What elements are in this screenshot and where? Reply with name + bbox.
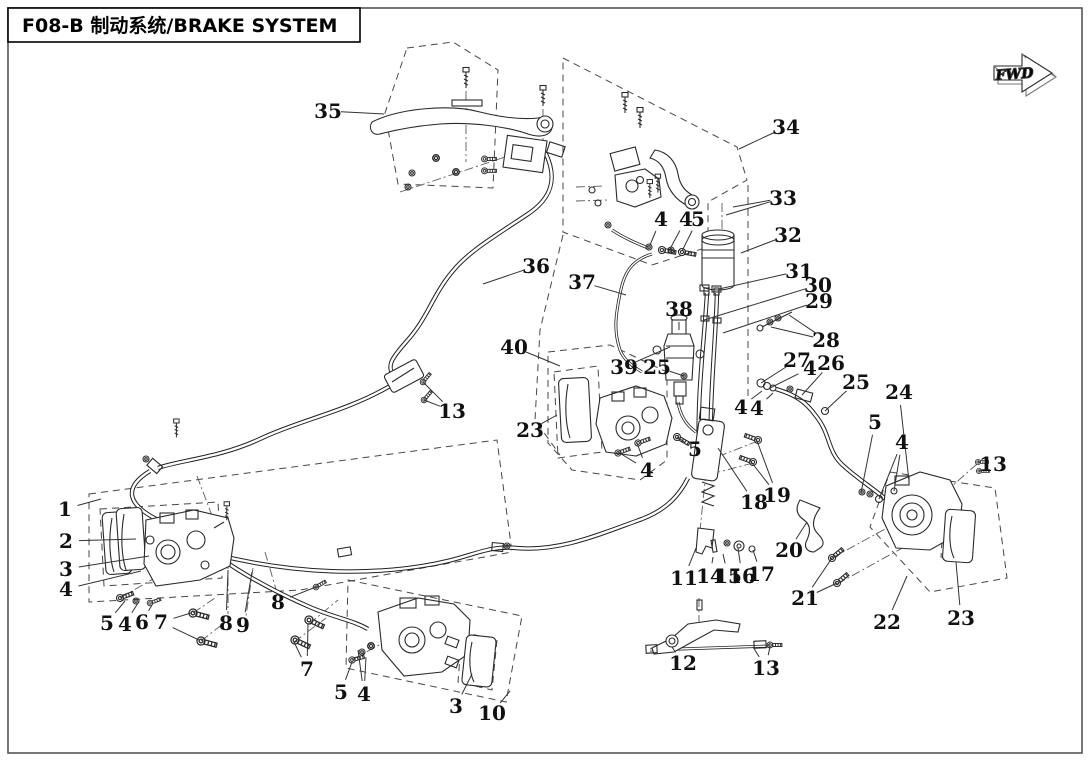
- part-label-36: 36: [522, 254, 550, 278]
- leader-line-21: [817, 583, 837, 593]
- part-label-29: 29: [805, 289, 833, 313]
- part-label-7: 7: [154, 610, 168, 634]
- part-label-25: 25: [842, 370, 870, 394]
- part-label-7: 7: [300, 657, 314, 681]
- brake-lever-assembly: [370, 68, 565, 191]
- leader-line-17: [753, 550, 757, 562]
- part-label-25: 25: [643, 355, 671, 379]
- leader-line-7: [174, 613, 192, 618]
- rear-master-cylinder: [646, 407, 850, 654]
- leader-line-19: [757, 441, 773, 483]
- page-title: F08-B 制动系统/BRAKE SYSTEM: [22, 14, 337, 37]
- part-label-37: 37: [568, 270, 596, 294]
- leader-line-40: [526, 352, 560, 366]
- part-label-1: 1: [58, 497, 72, 521]
- part-label-4: 4: [734, 395, 748, 419]
- leader-line-16: [738, 548, 740, 563]
- leader-line-20: [796, 522, 807, 539]
- part-label-23: 23: [516, 418, 544, 442]
- part-label-13: 13: [438, 399, 466, 423]
- leader-line-7: [173, 628, 199, 640]
- part-label-24: 24: [885, 380, 913, 404]
- part-label-9: 9: [236, 613, 250, 637]
- leader-line-14: [712, 557, 713, 563]
- part-label-4: 4: [640, 458, 654, 482]
- leader-line-36: [483, 270, 524, 284]
- leader-line-32: [741, 240, 776, 253]
- part-label-5: 5: [100, 611, 114, 635]
- leader-line-4: [670, 231, 680, 250]
- front-master-cylinder: [482, 93, 699, 258]
- leader-line-34: [739, 133, 774, 150]
- part-label-19: 19: [763, 483, 791, 507]
- part-label-22: 22: [873, 610, 901, 634]
- part-label-4: 4: [357, 682, 371, 706]
- rear-right-caliper: [859, 459, 990, 563]
- part-label-10: 10: [478, 701, 506, 725]
- part-label-8: 8: [271, 590, 285, 614]
- diagram-canvas: F08-B 制动系统/BRAKE SYSTEM FWD: [0, 0, 1090, 760]
- leader-line-8: [290, 587, 316, 597]
- fwd-direction-arrow: FWD: [994, 54, 1056, 96]
- fwd-label: FWD: [994, 65, 1035, 84]
- title-block: F08-B 制动系统/BRAKE SYSTEM: [8, 8, 360, 42]
- part-label-4: 4: [750, 396, 764, 420]
- leader-line-21: [812, 558, 832, 587]
- part-label-39: 39: [610, 355, 638, 379]
- part-label-4: 4: [59, 577, 73, 601]
- part-label-8: 8: [219, 611, 233, 635]
- part-label-28: 28: [812, 328, 840, 352]
- part-label-4: 4: [803, 356, 817, 380]
- leader-line-4: [770, 374, 798, 388]
- part-label-6: 6: [135, 610, 149, 634]
- part-label-26: 26: [817, 351, 845, 375]
- part-label-5: 5: [691, 207, 705, 231]
- part-label-12: 12: [669, 651, 697, 675]
- part-label-20: 20: [775, 538, 803, 562]
- part-label-13: 13: [979, 452, 1007, 476]
- part-label-13: 13: [752, 656, 780, 680]
- leader-line-11: [689, 548, 696, 566]
- part-label-4: 4: [118, 612, 132, 636]
- part-label-4: 4: [895, 430, 909, 454]
- center-caliper: [558, 377, 691, 457]
- leader-line-4: [365, 657, 366, 681]
- part-label-23: 23: [947, 606, 975, 630]
- part-label-21: 21: [791, 586, 819, 610]
- part-label-34: 34: [772, 115, 800, 139]
- part-label-5: 5: [868, 410, 882, 434]
- leader-line-5: [682, 231, 692, 251]
- part-label-32: 32: [774, 223, 802, 247]
- leader-line-15: [723, 554, 725, 563]
- part-labels: 3536133433324453738313029282742625245413…: [58, 99, 1007, 725]
- part-label-17: 17: [747, 562, 775, 586]
- leader-line-28: [771, 327, 813, 337]
- part-label-40: 40: [500, 335, 528, 359]
- part-label-4: 4: [654, 207, 668, 231]
- part-label-5: 5: [688, 437, 702, 461]
- part-label-33: 33: [769, 186, 797, 210]
- part-label-11: 11: [670, 566, 698, 590]
- part-label-5: 5: [334, 680, 348, 704]
- leader-line-4: [650, 231, 656, 245]
- part-label-3: 3: [449, 694, 463, 718]
- part-label-2: 2: [59, 529, 73, 553]
- parts-diagram-page: F08-B 制动系统/BRAKE SYSTEM FWD: [0, 0, 1090, 760]
- leader-line-35: [341, 112, 384, 114]
- leader-line-4: [767, 393, 774, 399]
- leader-line-7: [307, 624, 308, 656]
- leader-line-22: [892, 576, 907, 610]
- part-label-38: 38: [665, 297, 693, 321]
- leader-line-18: [718, 448, 747, 491]
- part-label-35: 35: [314, 99, 342, 123]
- leader-line-23: [956, 562, 960, 605]
